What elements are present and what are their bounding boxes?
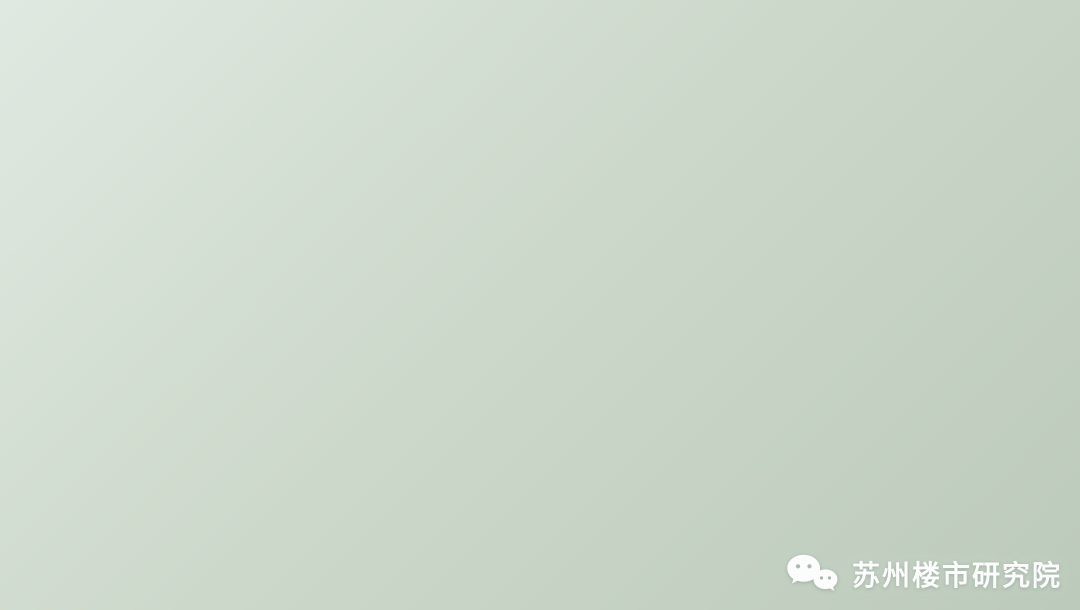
rendered-city-scene bbox=[0, 0, 1080, 610]
aerial-masterplan-render: 苏州楼市研究院 bbox=[0, 0, 1080, 610]
